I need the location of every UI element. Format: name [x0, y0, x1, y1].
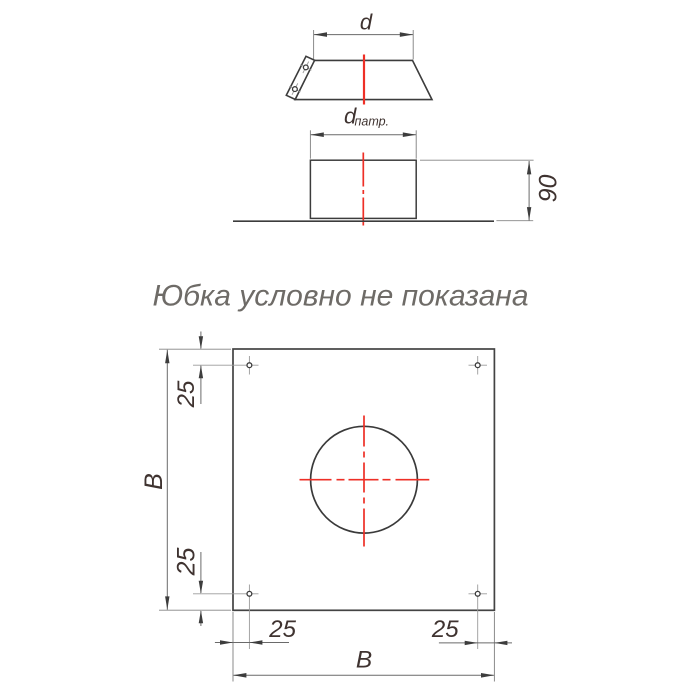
svg-text:25: 25	[173, 548, 201, 577]
svg-text:Юбка условно не показана: Юбка условно не показана	[153, 280, 529, 313]
svg-text:патр.: патр.	[355, 115, 390, 129]
svg-text:25: 25	[173, 380, 200, 408]
svg-text:90: 90	[535, 175, 563, 203]
svg-text:B: B	[140, 473, 168, 490]
svg-text:B: B	[356, 647, 372, 674]
svg-text:25: 25	[431, 616, 459, 643]
svg-text:d: d	[360, 10, 373, 35]
svg-text:25: 25	[268, 616, 296, 643]
